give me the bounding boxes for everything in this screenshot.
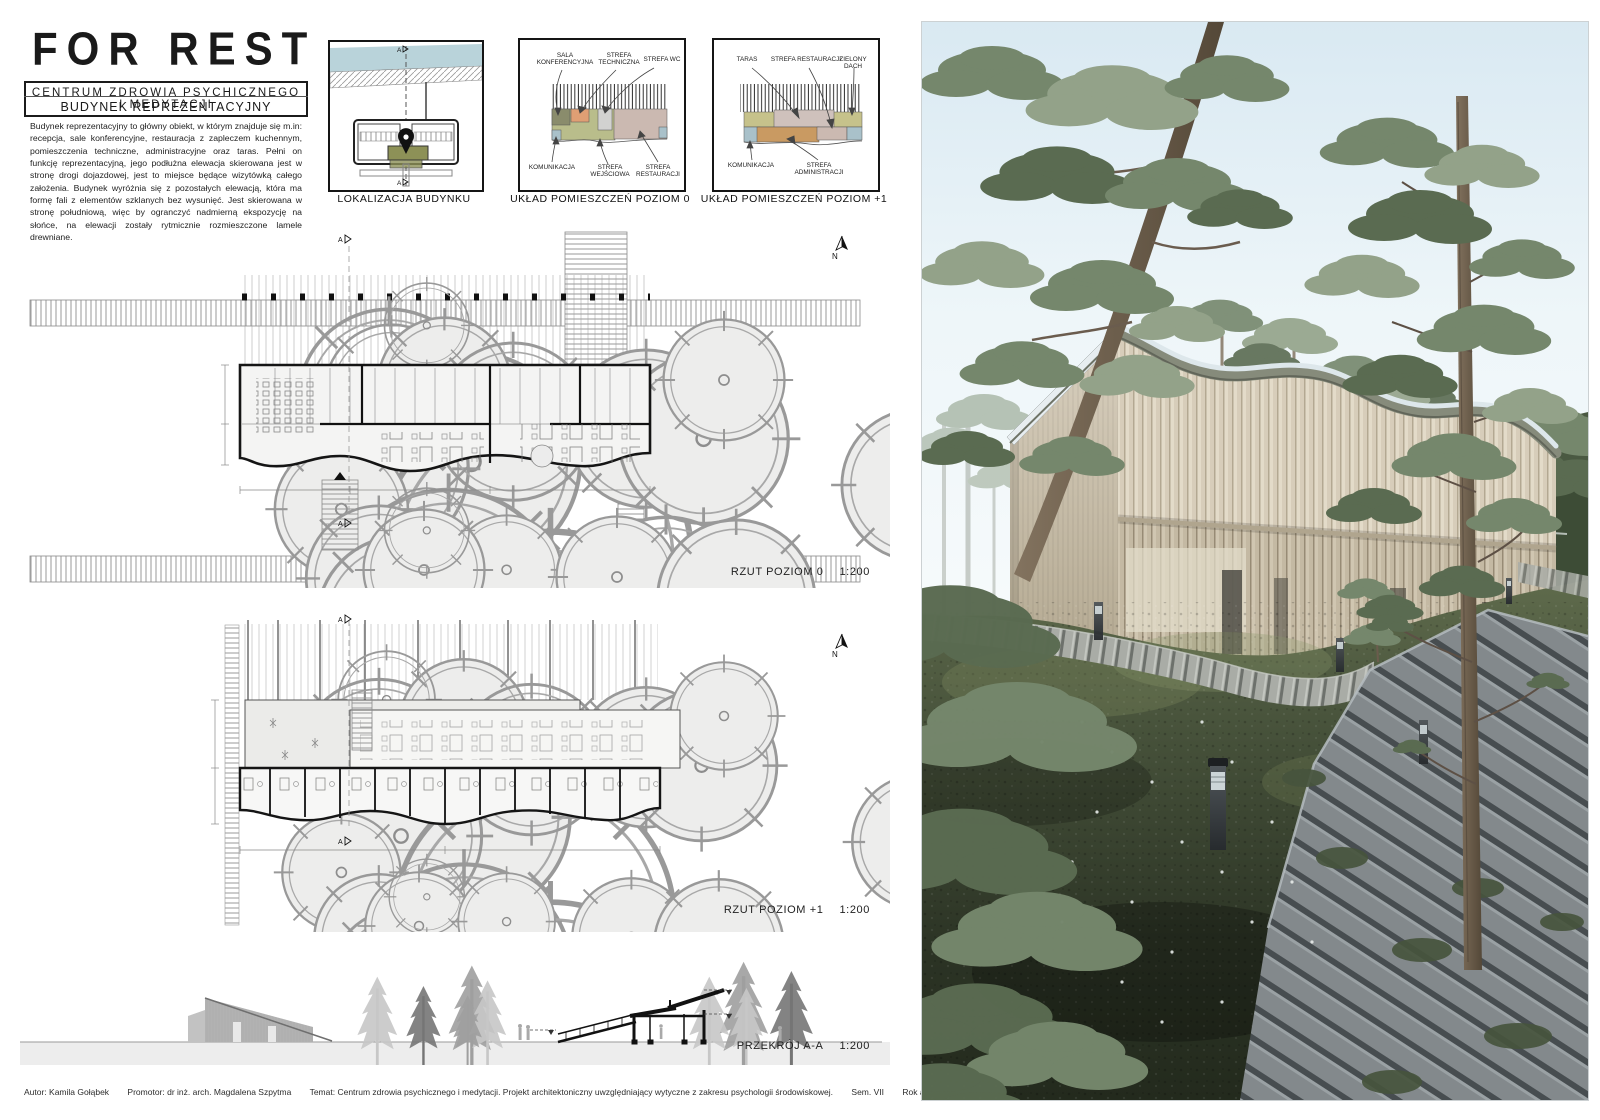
svg-text:N: N — [832, 650, 838, 659]
diagram-poziom0: SALA KONFERENCYJNA STREFA TECHNICZNA STR… — [518, 38, 686, 192]
elevation-building — [188, 998, 332, 1042]
label-strefa-administracji: STREFA ADMINISTRACJI — [786, 162, 852, 177]
diagram-lokalizacja: A A — [328, 40, 484, 192]
svg-text:A: A — [397, 47, 402, 54]
plan1-label: RZUT POZIOM +1 1:200 — [590, 904, 870, 916]
svg-text:A: A — [338, 521, 343, 528]
label-sala-konferencyjna: SALA KONFERENCYJNA — [534, 52, 596, 67]
credits-line: Autor: Kamila Gołąbek Promotor: dr inż. … — [24, 1087, 914, 1097]
label-zielony-dach: ZIELONY DACH — [830, 56, 876, 71]
credit-semestr: Sem. VII — [851, 1087, 884, 1097]
label-strefa-wejsciowa: STREFA WEJŚCIOWA — [582, 164, 638, 179]
label-taras: TARAS — [726, 56, 768, 63]
plan0-label: RZUT POZIOM 0 1:200 — [590, 566, 870, 578]
dining-tables-left — [380, 432, 484, 462]
label-komunikacja-1: KOMUNIKACJA — [720, 162, 782, 169]
poster-board: FOR REST CENTRUM ZDROWIA PSYCHICZNEGO I … — [0, 0, 1600, 1120]
svg-text:A: A — [397, 180, 402, 187]
label-strefa-techniczna: STREFA TECHNICZNA — [594, 52, 644, 67]
label-strefa-wc: STREFA WC — [642, 56, 682, 63]
bollard-main — [1208, 758, 1228, 850]
entrance-walkway — [322, 480, 358, 550]
svg-text:A: A — [338, 237, 343, 244]
render-scene — [922, 22, 1588, 1100]
credit-promotor: Promotor: dr inż. arch. Magdalena Szpytm… — [127, 1087, 291, 1097]
lokalizacja-drawing: A A — [330, 42, 482, 190]
label-komunikacja-0: KOMUNIKACJA — [522, 164, 582, 171]
caption-poziom1: UKŁAD POMIESZCZEŃ POZIOM +1 — [700, 193, 888, 205]
caption-poziom0: UKŁAD POMIESZCZEŃ POZIOM 0 — [510, 193, 690, 205]
credit-autor: Autor: Kamila Gołąbek — [24, 1087, 109, 1097]
logo-text: FOR REST — [32, 26, 316, 72]
label-strefa-restauracji-0: STREFA RESTAURACJI — [632, 164, 684, 179]
intro-title: BUDYNEK REPREZENTACYJNY — [30, 100, 302, 114]
terrace-furniture — [360, 720, 650, 760]
svg-text:N: N — [832, 252, 838, 261]
north-arrow-plan0: N — [832, 236, 848, 261]
header-divider — [24, 96, 308, 97]
building-visualization — [922, 22, 1588, 1100]
floor-plan-level0: A A N — [20, 228, 890, 588]
intro-body: Budynek reprezentacyjny to główny obiekt… — [30, 120, 302, 243]
svg-text:A: A — [338, 839, 343, 846]
credit-temat: Temat: Centrum zdrowia psychicznego i me… — [310, 1087, 833, 1097]
north-arrow-plan1: N — [832, 634, 848, 659]
floor-plan-level1: A A N — [20, 612, 890, 932]
svg-text:A: A — [338, 617, 343, 624]
section-label: PRZEKRÓJ A-A 1:200 — [590, 1040, 870, 1052]
intro-section: BUDYNEK REPREZENTACYJNY Budynek reprezen… — [30, 100, 302, 243]
diagram-poziom1: TARAS STREFA RESTAURACJI ZIELONY DACH KO… — [712, 38, 880, 192]
caption-lokalizacja: LOKALIZACJA BUDYNKU — [312, 193, 496, 205]
terrace-stairs — [352, 690, 372, 750]
conference-seating — [256, 378, 314, 434]
